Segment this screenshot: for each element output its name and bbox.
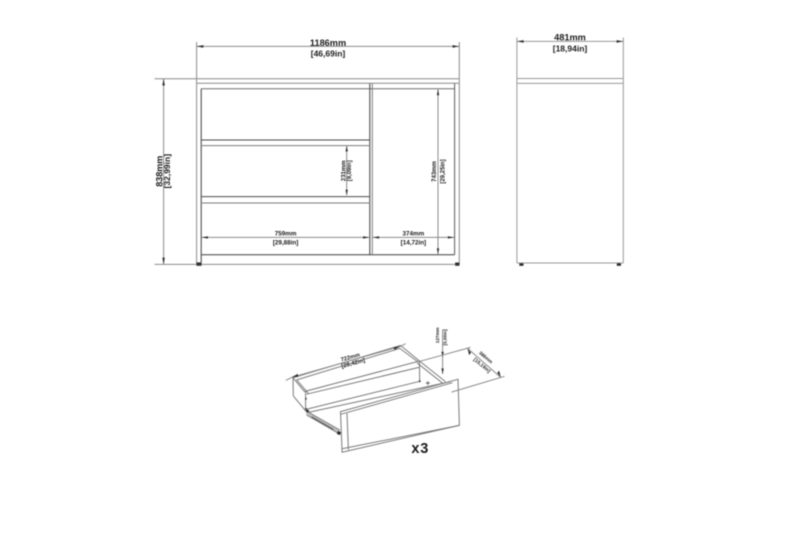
svg-text:481mm: 481mm	[554, 33, 586, 43]
svg-text:[9,09in]: [9,09in]	[347, 160, 353, 181]
svg-text:127mm: 127mm	[435, 327, 440, 343]
svg-text:743mm: 743mm	[432, 161, 438, 182]
svg-text:759mm: 759mm	[275, 231, 297, 238]
svg-text:374mm: 374mm	[403, 231, 425, 238]
svg-text:x3: x3	[411, 441, 429, 457]
svg-text:1186mm: 1186mm	[310, 38, 346, 48]
svg-text:[32,99in]: [32,99in]	[162, 154, 172, 189]
svg-text:[46,69in]: [46,69in]	[311, 49, 346, 59]
svg-text:[29,88in]: [29,88in]	[273, 240, 299, 247]
svg-text:[29,25in]: [29,25in]	[440, 159, 446, 183]
svg-text:[5,00in]: [5,00in]	[443, 329, 448, 346]
svg-text:[14,72in]: [14,72in]	[401, 240, 427, 247]
svg-text:[18,94in]: [18,94in]	[553, 44, 588, 54]
